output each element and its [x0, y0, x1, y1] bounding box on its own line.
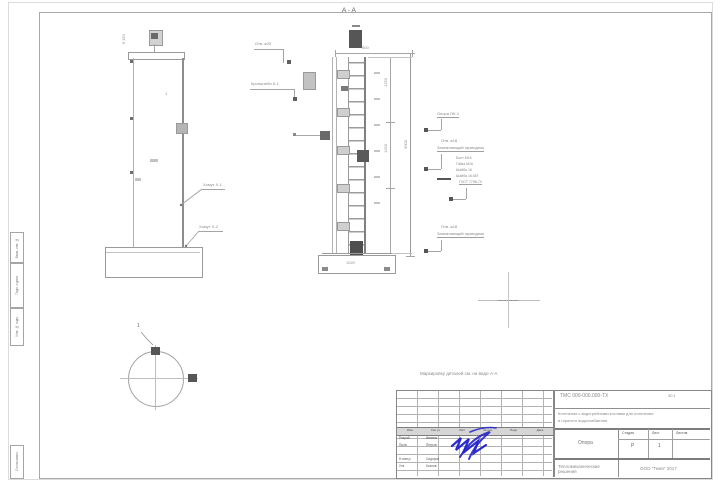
- rung-tick-4: [374, 150, 380, 152]
- note4-line2: Заземляющий проводник: [437, 232, 484, 238]
- bottomband-divider: [555, 458, 710, 460]
- note3-line2: Гайка М16: [456, 162, 473, 166]
- section-left-detail-box: [303, 72, 316, 90]
- rev-header-list: Лист: [449, 428, 475, 435]
- stage-col-divider: [618, 429, 619, 477]
- note1-arrow: [424, 128, 428, 132]
- note2-line2: Заземляющий проводник: [437, 146, 484, 152]
- sheet-value: 1: [658, 444, 661, 450]
- signer-name-2: Петров: [426, 442, 437, 449]
- ladder-bracket-4: [337, 184, 350, 193]
- section-callout-hole-arrow: [287, 60, 291, 64]
- weld-dot-1: [130, 60, 133, 63]
- note3-line3: Шайба 16: [456, 168, 472, 172]
- section-top-cap: [349, 30, 362, 48]
- section-callout-bracket-line: [250, 89, 294, 90]
- project-line-2: и горячего водоснабжения: [558, 419, 607, 424]
- section-base-plate: [318, 255, 396, 274]
- note2-arrow: [424, 167, 428, 171]
- rung-tick-5: [374, 176, 380, 178]
- plan-circle: [128, 351, 184, 407]
- section-dim-overall-line: [410, 53, 411, 257]
- section-callout-hole: Отв. ⌀20: [255, 42, 271, 47]
- rung-tick-3: [374, 124, 380, 126]
- rev-header-data: Дата: [527, 428, 553, 435]
- section-detail-blob-small: [341, 86, 348, 91]
- dim-overall-tick-top: [406, 53, 415, 54]
- elevation-callout-upper-line: [202, 189, 225, 190]
- ext-line-top: [368, 57, 412, 58]
- elevation-column-body: [133, 58, 184, 247]
- ladder-bracket-3: [337, 146, 350, 155]
- signer-role-1: Разраб.: [399, 435, 410, 442]
- rev-header-koluch: Кол.уч.: [423, 428, 449, 435]
- note2-hline: [427, 169, 441, 170]
- weld-dot-3: [130, 171, 133, 174]
- section-dim-overall: 9000: [404, 140, 409, 149]
- section-dim-top-line: [335, 53, 413, 54]
- note3-arrow: [449, 197, 453, 201]
- section-dim-mid2: 1250: [384, 144, 389, 153]
- doc-extra: 30.1: [668, 394, 676, 399]
- base-foot-left: [322, 267, 328, 271]
- elevation-callout-lower-line: [199, 231, 223, 232]
- drawing-name: Опора: [578, 441, 593, 447]
- elevation-pos-label: 1: [165, 92, 167, 97]
- sheets-label: Листов: [676, 431, 687, 435]
- plan-top-detail: [151, 347, 160, 355]
- section-dim-top: 600: [362, 46, 369, 51]
- signer-name-4: Сидоров: [426, 456, 439, 463]
- ladder-bracket-2: [337, 108, 350, 117]
- note4-arrow: [424, 249, 428, 253]
- note3-line1: Болт М16: [456, 156, 472, 160]
- margin-stamp-1: Взам. инв. №: [10, 232, 24, 264]
- rev-header-dok: № док.: [475, 428, 501, 435]
- revision-header-row: Изм. Кол.уч. Лист № док. Подп. Дата: [397, 427, 553, 436]
- elevation-mark-1: [150, 159, 158, 162]
- company-text: ООО "Темп" 2017: [640, 466, 677, 471]
- rung-tick-6: [374, 202, 380, 204]
- section-label: А-А: [342, 7, 357, 14]
- note1-hline: [427, 130, 441, 131]
- elevation-top-detail-core: [151, 33, 158, 39]
- sheet-label: Лист: [652, 431, 660, 435]
- ladder-bracket-1: [337, 70, 350, 79]
- note4-hline: [427, 251, 441, 252]
- margin-stamp-1-label: Взам. инв. №: [15, 238, 19, 258]
- elevation-right-handle: [176, 123, 188, 134]
- margin-stamp-3-label: Инв. № подл.: [15, 316, 19, 336]
- doc-row-divider: [555, 408, 710, 409]
- elevation-top-dim: ⌀159: [122, 26, 127, 46]
- signer-name-1: Иванов: [426, 435, 437, 442]
- margin-stamp-3: Инв. № подл.: [10, 307, 24, 346]
- rung-tick-1: [374, 72, 380, 74]
- general-note: Маркировку деталей см. на виде А-А: [420, 371, 497, 376]
- section-wall-clip: [320, 131, 330, 140]
- note3-line5: ГОСТ 7798-70: [459, 180, 482, 185]
- elevation-callout-lower: Хомут Х-2: [199, 225, 218, 230]
- stage-value: Р: [631, 444, 634, 450]
- note3-drop: [466, 188, 467, 199]
- sheet-col-divider: [648, 429, 649, 458]
- titleblock-main-divider: [553, 390, 555, 477]
- section-callout-bracket-arrow: [293, 97, 297, 101]
- stage-label: Стадия: [622, 431, 634, 435]
- note1-drop: [441, 119, 442, 130]
- rev-header-podp: Подп.: [501, 428, 527, 435]
- stage-header-underline: [618, 439, 710, 440]
- note4-drop: [441, 240, 442, 251]
- margin-stamp-2-label: Подп. и дата: [15, 276, 19, 295]
- section-detail-blob-mid: [357, 150, 369, 162]
- project-line-1: Котельная с водогрейными котлами для ото…: [558, 412, 653, 417]
- note3-line4: Шайба 16.65Г: [456, 174, 479, 178]
- plan-centerline-h: [120, 378, 198, 379]
- plan-right-arrow: [188, 374, 197, 382]
- note3-dash: [437, 178, 451, 180]
- section-dim-top-tick-left: [335, 50, 336, 57]
- drawing-sheet: Взам. инв. № Подп. и дата Инв. № подл. С…: [0, 0, 720, 480]
- sheets-col-divider: [672, 429, 673, 458]
- note2-drop: [441, 154, 442, 169]
- signer-name-5: Козлов: [426, 463, 436, 470]
- note3-hline: [452, 199, 466, 200]
- section-dim-base: 1020: [346, 261, 355, 266]
- section-dim-mid-line: [390, 57, 391, 253]
- doc-number: ТМС 000-000.000-ТХ: [560, 394, 608, 400]
- note1-text: Опора ОК-1: [437, 112, 459, 118]
- section-clip-leader: [296, 135, 320, 136]
- elevation-base-inner-line: [106, 252, 200, 253]
- dim-overall-tick-bottom: [406, 256, 415, 257]
- dim-mid-tick-2: [386, 122, 395, 123]
- elevation-callout-upper: Хомут Х-1: [203, 183, 222, 188]
- margin-stamp-2: Подп. и дата: [10, 262, 24, 309]
- section-cap-antenna: [352, 25, 360, 27]
- plan-pos-label: 1: [137, 324, 140, 330]
- crosshair-vertical: [508, 272, 509, 328]
- section-wall-line-1: [332, 57, 333, 253]
- discipline-text: Тепломеханические решения: [558, 464, 618, 475]
- weld-dot-2: [130, 117, 133, 120]
- section-clip-leader-dot: [293, 133, 296, 136]
- elevation-stem-line: [154, 44, 155, 52]
- section-callout-bracket: Кронштейн К-1: [251, 82, 279, 87]
- section-dim-mid1: 1250: [384, 78, 389, 87]
- section-callout-hole-drop: [283, 49, 284, 63]
- margin-stamp-4: Согласовано: [10, 445, 24, 479]
- note2-line1: Отв. ⌀18: [441, 139, 457, 144]
- dim-mid-tick-3: [386, 188, 395, 189]
- signer-role-4: Н.контр.: [399, 456, 411, 463]
- ladder-bracket-5: [337, 222, 350, 231]
- base-foot-right: [384, 267, 390, 271]
- rung-tick-2: [374, 98, 380, 100]
- rev-header-izm: Изм.: [397, 428, 423, 435]
- note4-line1: Отв. ⌀18: [441, 225, 457, 230]
- midband-top-divider: [555, 428, 710, 430]
- margin-stamp-4-label: Согласовано: [15, 452, 19, 471]
- section-base-top-line: [322, 253, 392, 254]
- signer-role-2: Пров.: [399, 442, 407, 449]
- signer-role-5: Утв.: [399, 463, 405, 470]
- elevation-mark-2: [135, 178, 141, 181]
- section-callout-hole-line: [254, 49, 284, 50]
